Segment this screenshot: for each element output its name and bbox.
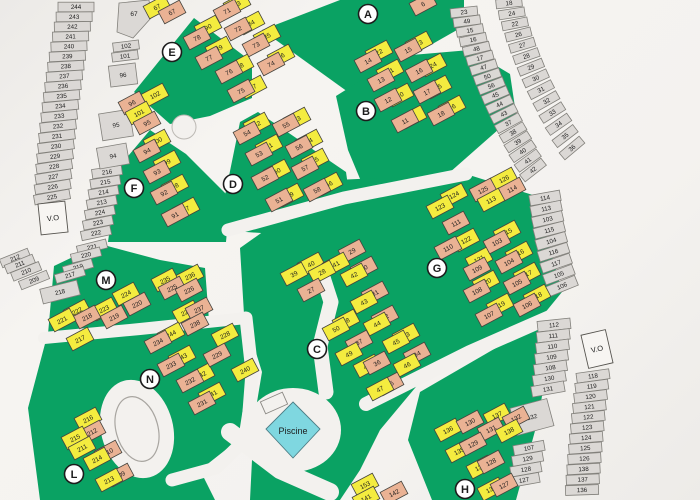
- parking-cell-se-col-b-126: 126: [568, 453, 602, 465]
- parking-cell-west-column-232-label: 232: [53, 123, 65, 131]
- vo-box-label-0: V.O: [46, 213, 59, 223]
- zone-badge-M-letter: M: [101, 275, 110, 287]
- parking-cell-se-col-a-110-label: 110: [547, 343, 558, 351]
- parking-cell-west-column-241: 241: [52, 31, 88, 42]
- zone-badge-E: E: [163, 43, 182, 62]
- parking-cell-west-column-230-label: 230: [50, 143, 62, 151]
- zone-badge-H: H: [456, 480, 475, 499]
- parking-cell-se-col-a-112-label: 112: [549, 322, 560, 330]
- parking-cell-se-col-b-123-label: 123: [582, 424, 593, 432]
- zone-badge-G: G: [428, 259, 447, 278]
- parking-cell-se-col-b-124-label: 124: [581, 434, 592, 442]
- parking-cell-se-col-b-137-label: 137: [577, 476, 588, 483]
- building-142: 142: [380, 481, 408, 500]
- parking-cell-west-column-235-label: 235: [56, 93, 67, 101]
- parking-cell-se-col-a-111-label: 111: [548, 332, 559, 340]
- parking-cell-west-column-233-label: 233: [54, 113, 66, 121]
- parking-cell-se-col-b-126-label: 126: [579, 455, 590, 463]
- site-plan-photo: 6724424324224124023923823723623523423323…: [0, 0, 700, 500]
- zone-badge-M: M: [97, 271, 116, 290]
- zone-badge-L: L: [65, 465, 84, 484]
- parking-cell-west-column-239-label: 239: [62, 53, 73, 60]
- zone-badge-H-letter: H: [461, 484, 469, 496]
- parking-cell-west-column-234-label: 234: [55, 103, 66, 111]
- vo-box-1: V.O: [581, 330, 613, 369]
- zone-badge-B-letter: B: [362, 106, 370, 118]
- zone-badge-C: C: [308, 340, 327, 359]
- parking-cell-102-label: 102: [121, 42, 133, 50]
- parking-cell-se-col-b-138: 138: [567, 463, 600, 475]
- parking-cell-se-col-b-138-label: 138: [578, 466, 589, 474]
- parking-cell-ne-curve-b-18-label: 18: [505, 0, 513, 7]
- parking-cell-se-col-b-136-label: 136: [577, 487, 588, 494]
- parking-cell-west-column-240: 240: [51, 41, 87, 52]
- zone-badge-L-letter: L: [71, 469, 78, 481]
- parking-cell-west-column-229-label: 229: [50, 153, 62, 161]
- parking-cell-west-column-242-label: 242: [67, 24, 78, 31]
- zone-badge-F: F: [125, 179, 144, 198]
- zone-badge-G-letter: G: [433, 263, 442, 275]
- parking-cell-se-col-b-125-label: 125: [580, 445, 591, 453]
- parking-cell-se-col-b-125: 125: [568, 442, 602, 454]
- parking-cell-se-col-b-122-label: 122: [583, 414, 595, 422]
- parking-cell-se-col-b-136: 136: [565, 485, 598, 496]
- parking-cell-west-column-241-label: 241: [65, 33, 76, 40]
- parking-cell-se-col-b-120-label: 120: [585, 393, 597, 401]
- parking-cell-west-column-244: 244: [58, 2, 94, 12]
- parking-cell-west-column-236-label: 236: [58, 83, 69, 91]
- parking-cell-west-column-238-label: 238: [61, 63, 72, 71]
- zone-badge-N-letter: N: [146, 374, 154, 386]
- zone-badge-E-letter: E: [168, 47, 175, 59]
- site-map: 6724424324224124023923823723623523423323…: [0, 0, 700, 500]
- parking-cell-west-column-242: 242: [54, 21, 90, 31]
- parking-cell-se-col-b-121-label: 121: [584, 403, 596, 411]
- parking-cell-se-col-a-109-label: 109: [546, 353, 558, 361]
- zone-badge-F-letter: F: [131, 183, 138, 195]
- gray-plot-label: 67: [130, 11, 138, 18]
- zone-badge-D: D: [224, 175, 243, 194]
- parking-cell-west-column-243: 243: [56, 12, 92, 22]
- parking-cell-west-column-243-label: 243: [69, 14, 80, 21]
- parking-cell-inner-column-216-label: 216: [101, 168, 113, 176]
- zone-badge-D-letter: D: [229, 179, 237, 191]
- zone-badge-A-letter: A: [364, 9, 372, 21]
- parking-cell-96: 96: [108, 63, 137, 87]
- zone-badge-A: A: [359, 5, 378, 24]
- zone-badge-B: B: [357, 102, 376, 121]
- parking-cell-101-label: 101: [120, 52, 132, 60]
- vo-box-0: V.O: [38, 201, 68, 235]
- parking-cell-west-column-240-label: 240: [64, 43, 75, 50]
- zone-badge-N: N: [141, 370, 160, 389]
- parking-cell-se-col-b-137: 137: [566, 474, 599, 485]
- parking-cell-se-col-b-119-label: 119: [586, 383, 597, 391]
- parking-cell-west-column-231-label: 231: [52, 133, 64, 141]
- zone-badge-C-letter: C: [313, 344, 321, 356]
- parking-cell-west-column-237-label: 237: [59, 73, 70, 81]
- parking-cell-west-column-244-label: 244: [71, 4, 82, 11]
- parking-cell-se-col-b-118-label: 118: [588, 372, 599, 380]
- parking-cell-ne-curve-a-23-label: 23: [460, 9, 468, 17]
- roundabout: [172, 115, 196, 139]
- pool-label: Piscine: [278, 426, 307, 436]
